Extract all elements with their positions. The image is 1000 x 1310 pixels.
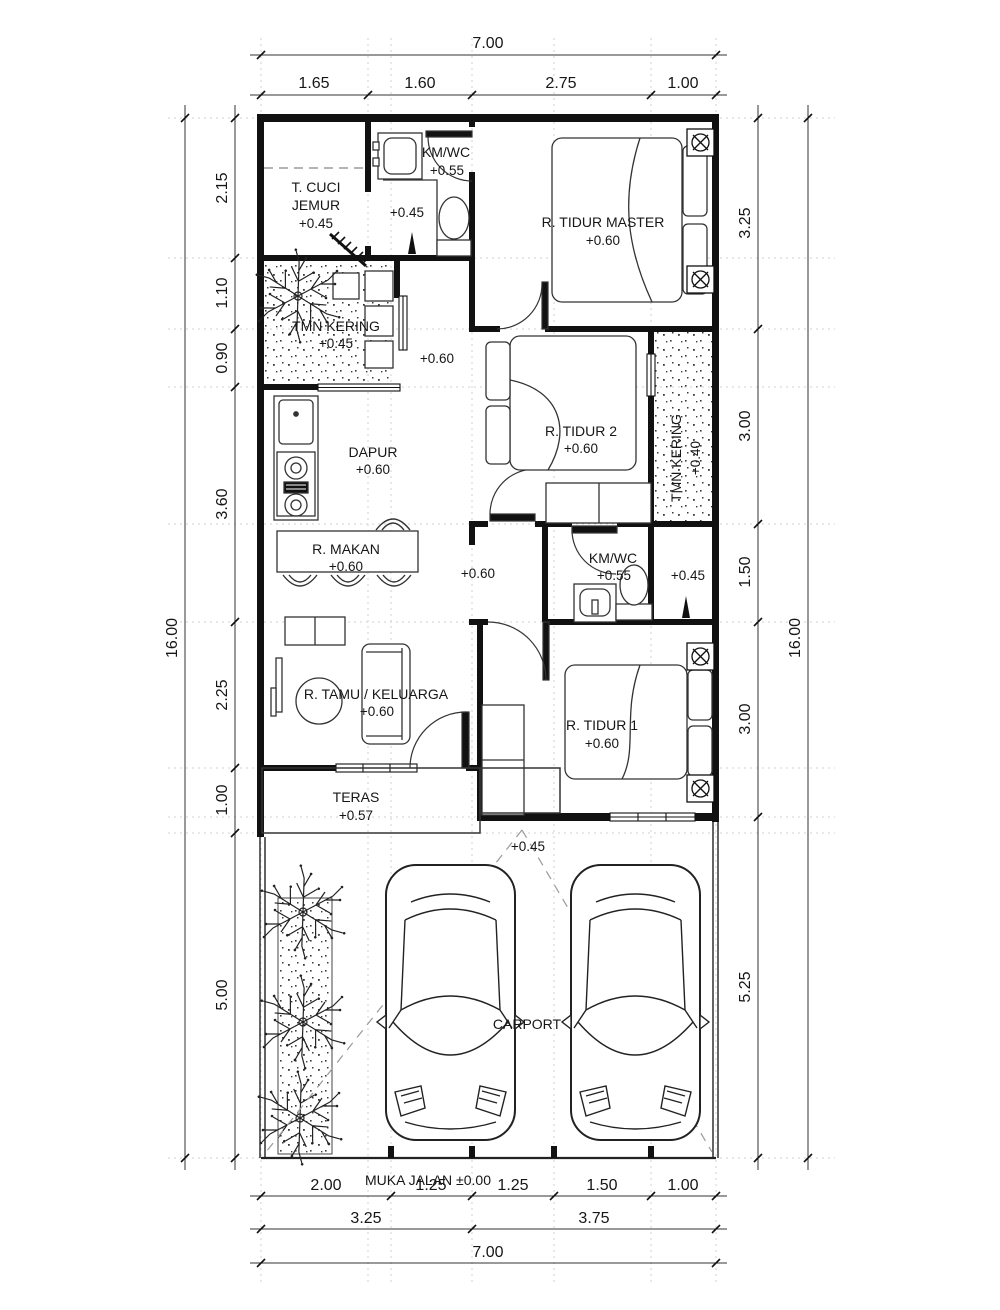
elevation-label: +0.60 bbox=[586, 233, 620, 248]
nightstand-lamp bbox=[687, 266, 714, 293]
dim-top-total: 7.00 bbox=[472, 35, 503, 52]
dim-bottom-subtotal: 3.25 bbox=[350, 1210, 381, 1227]
window-r-tidur-2 bbox=[647, 354, 655, 396]
toilet-km-wc-top bbox=[437, 197, 471, 256]
dim-right-seg: 5.25 bbox=[737, 971, 754, 1002]
floor-drain-icon bbox=[408, 232, 416, 254]
elevation-label: +0.45 bbox=[390, 205, 424, 220]
tv-shelf bbox=[271, 688, 276, 716]
dim-left-seg: 5.00 bbox=[214, 979, 231, 1010]
dim-left-seg: 2.15 bbox=[214, 172, 231, 203]
tv-panel bbox=[276, 658, 282, 712]
elevation-label: +0.60 bbox=[564, 441, 598, 456]
dim-left-seg: 0.90 bbox=[214, 342, 231, 373]
dim-right-seg: 3.25 bbox=[737, 207, 754, 238]
nightstand-lamp bbox=[687, 129, 714, 156]
room-label: TERAS bbox=[333, 789, 380, 805]
floor-plan-page: T. CUCI JEMUR +0.45 KM/WC +0.55 +0.45 R.… bbox=[0, 0, 1000, 1310]
dim-bottom-seg: 1.50 bbox=[586, 1177, 617, 1194]
bed-r-tidur-2 bbox=[486, 336, 636, 470]
elevation-label: +0.45 bbox=[319, 336, 353, 351]
door-r-tidur-2 bbox=[490, 469, 535, 521]
dim-left-seg: 3.60 bbox=[214, 488, 231, 519]
dining-chair bbox=[283, 575, 317, 586]
carport bbox=[266, 830, 712, 1152]
elevation-label: +0.60 bbox=[356, 462, 390, 477]
room-label: R. MAKAN bbox=[312, 541, 380, 557]
dim-right-total: 16.00 bbox=[787, 618, 804, 658]
room-label: R. TIDUR 2 bbox=[545, 423, 617, 439]
room-label: T. CUCI bbox=[292, 179, 341, 195]
dim-top-seg: 2.75 bbox=[545, 75, 576, 92]
sink-km-wc-top bbox=[373, 133, 422, 179]
gate-posts bbox=[388, 1146, 654, 1158]
floor-drain-icon bbox=[682, 596, 690, 618]
dim-top-seg: 1.60 bbox=[404, 75, 435, 92]
elevation-label: +0.45 bbox=[511, 839, 545, 854]
window-r-tidur-1 bbox=[610, 813, 695, 821]
dining-chair bbox=[377, 575, 411, 586]
room-label: KM/WC bbox=[422, 144, 470, 160]
dim-bottom-total: 7.00 bbox=[472, 1244, 503, 1261]
room-label: TMN KERING bbox=[668, 414, 684, 502]
room-label: CARPORT bbox=[493, 1016, 562, 1032]
kitchen-sink bbox=[279, 400, 313, 444]
dim-left-seg: 1.00 bbox=[214, 784, 231, 815]
dining-chair bbox=[376, 519, 410, 530]
kitchen-counter bbox=[274, 396, 318, 520]
dim-bottom-seg: 1.25 bbox=[497, 1177, 528, 1194]
dim-left-seg: 2.25 bbox=[214, 679, 231, 710]
nightstand-lamp bbox=[687, 643, 714, 670]
dim-right-seg: 3.00 bbox=[737, 703, 754, 734]
dim-bottom-seg: 1.25 bbox=[415, 1177, 446, 1194]
door-r-tidur-1 bbox=[488, 622, 549, 680]
dining-chair bbox=[331, 575, 365, 586]
elevation-label: +0.55 bbox=[430, 163, 464, 178]
room-label: TMN KERING bbox=[292, 318, 380, 334]
sink-km-wc-mid bbox=[574, 584, 616, 622]
window-garden-dapur bbox=[318, 384, 400, 391]
dim-right-seg: 3.00 bbox=[737, 410, 754, 441]
floor-plan-canvas: T. CUCI JEMUR +0.45 KM/WC +0.55 +0.45 R.… bbox=[0, 0, 1000, 1310]
dim-bottom-seg: 2.00 bbox=[310, 1177, 341, 1194]
room-label: DAPUR bbox=[348, 444, 397, 460]
car-icon bbox=[562, 865, 709, 1140]
elevation-label: +0.60 bbox=[461, 566, 495, 581]
dim-top-seg: 1.00 bbox=[667, 75, 698, 92]
room-label: KM/WC bbox=[589, 550, 637, 566]
wardrobe-r-tidur-1 bbox=[482, 705, 524, 815]
window-garden-hall bbox=[399, 296, 407, 350]
dim-left-total: 16.00 bbox=[164, 618, 181, 658]
dim-left-seg: 1.10 bbox=[214, 277, 231, 308]
elevation-label: +0.57 bbox=[339, 808, 373, 823]
elevation-label: +0.40 bbox=[688, 441, 703, 475]
elevation-label: +0.55 bbox=[597, 568, 631, 583]
dim-right-seg: 1.50 bbox=[737, 556, 754, 587]
room-label: R. TIDUR MASTER bbox=[542, 214, 665, 230]
door-r-tidur-master bbox=[497, 282, 548, 329]
room-label: JEMUR bbox=[292, 197, 340, 213]
elevation-label: +0.60 bbox=[360, 704, 394, 719]
car-icon bbox=[377, 865, 524, 1140]
elevation-label: +0.60 bbox=[585, 736, 619, 751]
elevation-label: +0.45 bbox=[671, 568, 705, 583]
dim-bottom-seg: 1.00 bbox=[667, 1177, 698, 1194]
elevation-label: +0.60 bbox=[420, 351, 454, 366]
door-entrance bbox=[410, 712, 469, 768]
nightstand-lamp bbox=[687, 775, 714, 802]
cabinet-r-tamu bbox=[285, 617, 345, 645]
room-label: R. TAMU / KELUARGA bbox=[304, 686, 449, 702]
dim-bottom-subtotal: 3.75 bbox=[578, 1210, 609, 1227]
elevation-label: +0.45 bbox=[299, 216, 333, 231]
elevation-label: +0.60 bbox=[329, 559, 363, 574]
room-label: R. TIDUR 1 bbox=[566, 717, 638, 733]
dim-top-seg: 1.65 bbox=[298, 75, 329, 92]
stove-icon bbox=[277, 452, 315, 516]
